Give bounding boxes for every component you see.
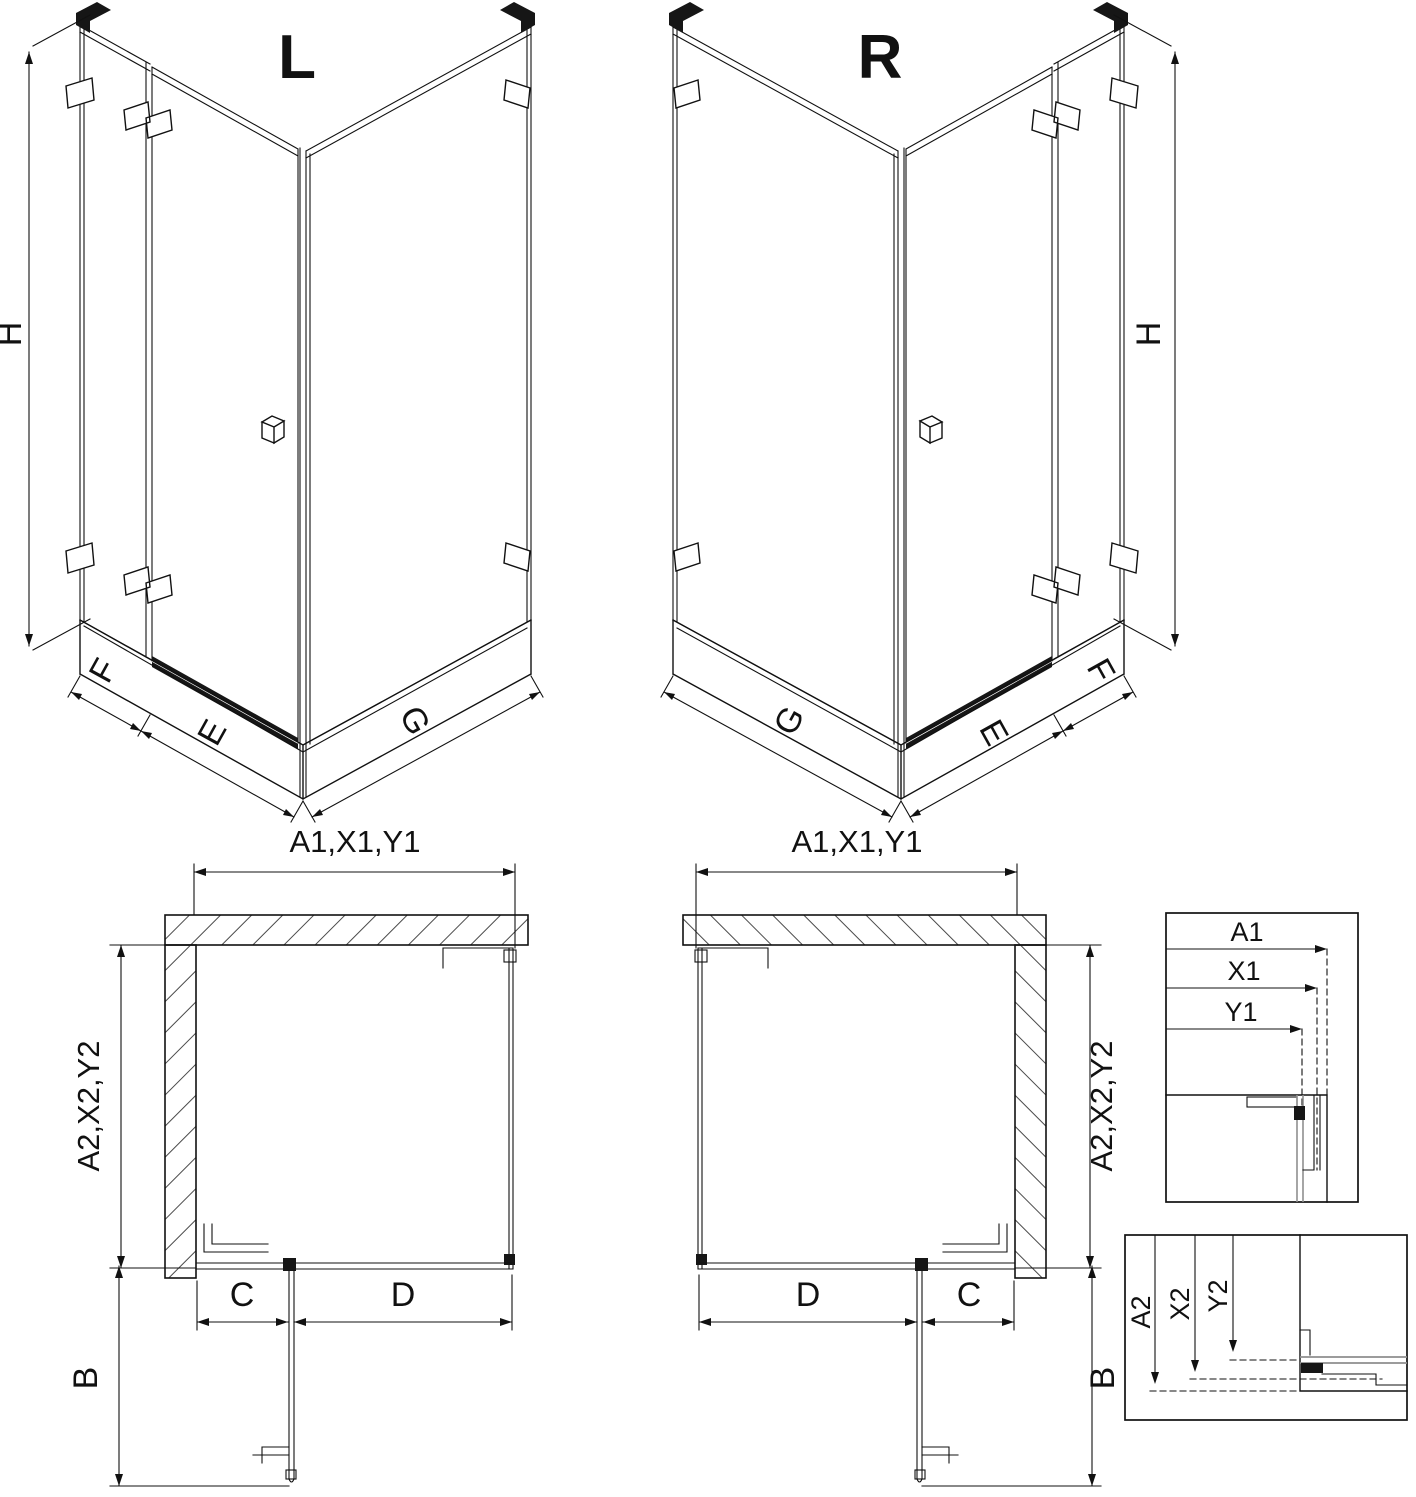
- iso-right-geometry: [661, 2, 1179, 822]
- plan-right-side-dim: A2,X2,Y2: [1084, 1041, 1119, 1172]
- plan-left-dim-b: B: [67, 1367, 105, 1390]
- iso-view-right: R H F E G: [661, 2, 1179, 822]
- plan-left-geometry: [110, 864, 528, 1486]
- plan-left-dim-c: C: [230, 1276, 255, 1314]
- detail-width-label-y1: Y1: [1224, 997, 1257, 1027]
- dim-label-f-left: F: [82, 652, 125, 689]
- plan-left-dim-d: D: [391, 1276, 416, 1314]
- dim-label-h-left: H: [0, 322, 29, 347]
- plan-left-top-dim: A1,X1,Y1: [290, 824, 421, 859]
- detail-depth-label-x2: X2: [1165, 1287, 1195, 1320]
- plan-view-right: A1,X1,Y1 A2,X2,Y2 C D B: [683, 824, 1122, 1486]
- iso-view-left: L H F E G: [0, 2, 543, 822]
- iso-left-geometry: [25, 2, 543, 822]
- detail-width-label-a1: A1: [1230, 917, 1263, 947]
- plan-left-side-dim: A2,X2,Y2: [71, 1041, 106, 1172]
- dim-label-g-right: G: [766, 700, 812, 742]
- plan-right-dim-d: D: [796, 1276, 821, 1314]
- dim-label-g-left: G: [392, 700, 438, 742]
- plan-right-dim-c: C: [957, 1276, 982, 1314]
- plan-right-dim-b: B: [1084, 1367, 1122, 1390]
- detail-depth-label-y2: Y2: [1203, 1279, 1233, 1312]
- variant-label-left: L: [278, 23, 316, 92]
- detail-view-depths: A2 X2 Y2: [1125, 1235, 1407, 1420]
- detail-depth-label-a2: A2: [1126, 1295, 1156, 1328]
- drawing-canvas: L H F E G R H F E G A1,X1,Y1 A2,X2,Y2 C …: [0, 0, 1416, 1497]
- dim-label-e-left: E: [190, 714, 234, 752]
- detail-width-label-x1: X1: [1227, 956, 1260, 986]
- dim-label-h-right: H: [1130, 322, 1168, 347]
- plan-right-top-dim: A1,X1,Y1: [792, 824, 923, 859]
- dim-label-f-right: F: [1079, 652, 1122, 689]
- plan-right-geometry: [683, 864, 1101, 1486]
- dim-label-e-right: E: [972, 714, 1016, 752]
- detail-view-widths: A1 X1 Y1: [1166, 913, 1358, 1202]
- shower-enclosure-technical-drawing: L H F E G R H F E G A1,X1,Y1 A2,X2,Y2 C …: [0, 0, 1416, 1497]
- plan-view-left: A1,X1,Y1 A2,X2,Y2 C D B: [67, 824, 528, 1486]
- variant-label-right: R: [858, 23, 903, 92]
